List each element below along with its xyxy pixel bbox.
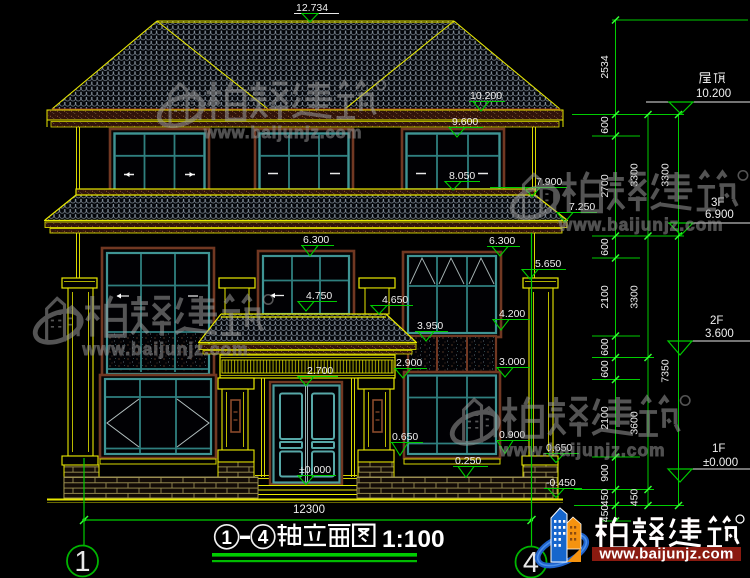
svg-text:9.600: 9.600	[452, 116, 478, 128]
svg-text:1: 1	[74, 546, 90, 578]
svg-text:2.900: 2.900	[396, 357, 422, 369]
svg-text:4: 4	[258, 528, 269, 549]
svg-text:6.300: 6.300	[303, 234, 329, 246]
svg-text:4.750: 4.750	[306, 290, 332, 302]
svg-text:450: 450	[629, 489, 641, 507]
svg-text:3.950: 3.950	[417, 320, 443, 332]
svg-text:900: 900	[599, 464, 611, 482]
svg-text:450: 450	[599, 489, 611, 507]
svg-text:www.baijunjz.com: www.baijunjz.com	[598, 546, 733, 563]
svg-text:1:100: 1:100	[382, 526, 445, 553]
svg-text:3.600: 3.600	[705, 328, 734, 340]
svg-text:3300: 3300	[629, 285, 641, 309]
svg-text:5.650: 5.650	[535, 258, 561, 270]
svg-text:600: 600	[599, 338, 611, 356]
svg-text:4.650: 4.650	[382, 294, 408, 306]
svg-text:±0.000: ±0.000	[299, 464, 331, 476]
svg-text:12.734: 12.734	[296, 2, 328, 14]
svg-text:0.250: 0.250	[455, 455, 481, 467]
svg-text:6.300: 6.300	[489, 235, 515, 247]
svg-text:7350: 7350	[660, 359, 672, 383]
svg-text:600: 600	[599, 360, 611, 378]
svg-text:600: 600	[599, 116, 611, 134]
svg-text:2.700: 2.700	[307, 365, 333, 377]
svg-text:1F: 1F	[712, 443, 725, 455]
svg-text:600: 600	[599, 238, 611, 256]
svg-text:2100: 2100	[599, 285, 611, 309]
svg-text:10.200: 10.200	[470, 90, 502, 102]
svg-text:±0.000: ±0.000	[703, 457, 738, 469]
svg-text:1: 1	[221, 528, 232, 549]
svg-text:-0.450: -0.450	[546, 477, 576, 489]
svg-text:8.050: 8.050	[449, 170, 475, 182]
svg-text:4.200: 4.200	[499, 308, 525, 320]
svg-text:10.200: 10.200	[696, 88, 731, 100]
svg-text:3.000: 3.000	[499, 356, 525, 368]
svg-text:2F: 2F	[710, 315, 723, 327]
svg-text:12300: 12300	[293, 504, 325, 516]
svg-text:2534: 2534	[599, 55, 611, 79]
svg-text:0.650: 0.650	[392, 431, 418, 443]
